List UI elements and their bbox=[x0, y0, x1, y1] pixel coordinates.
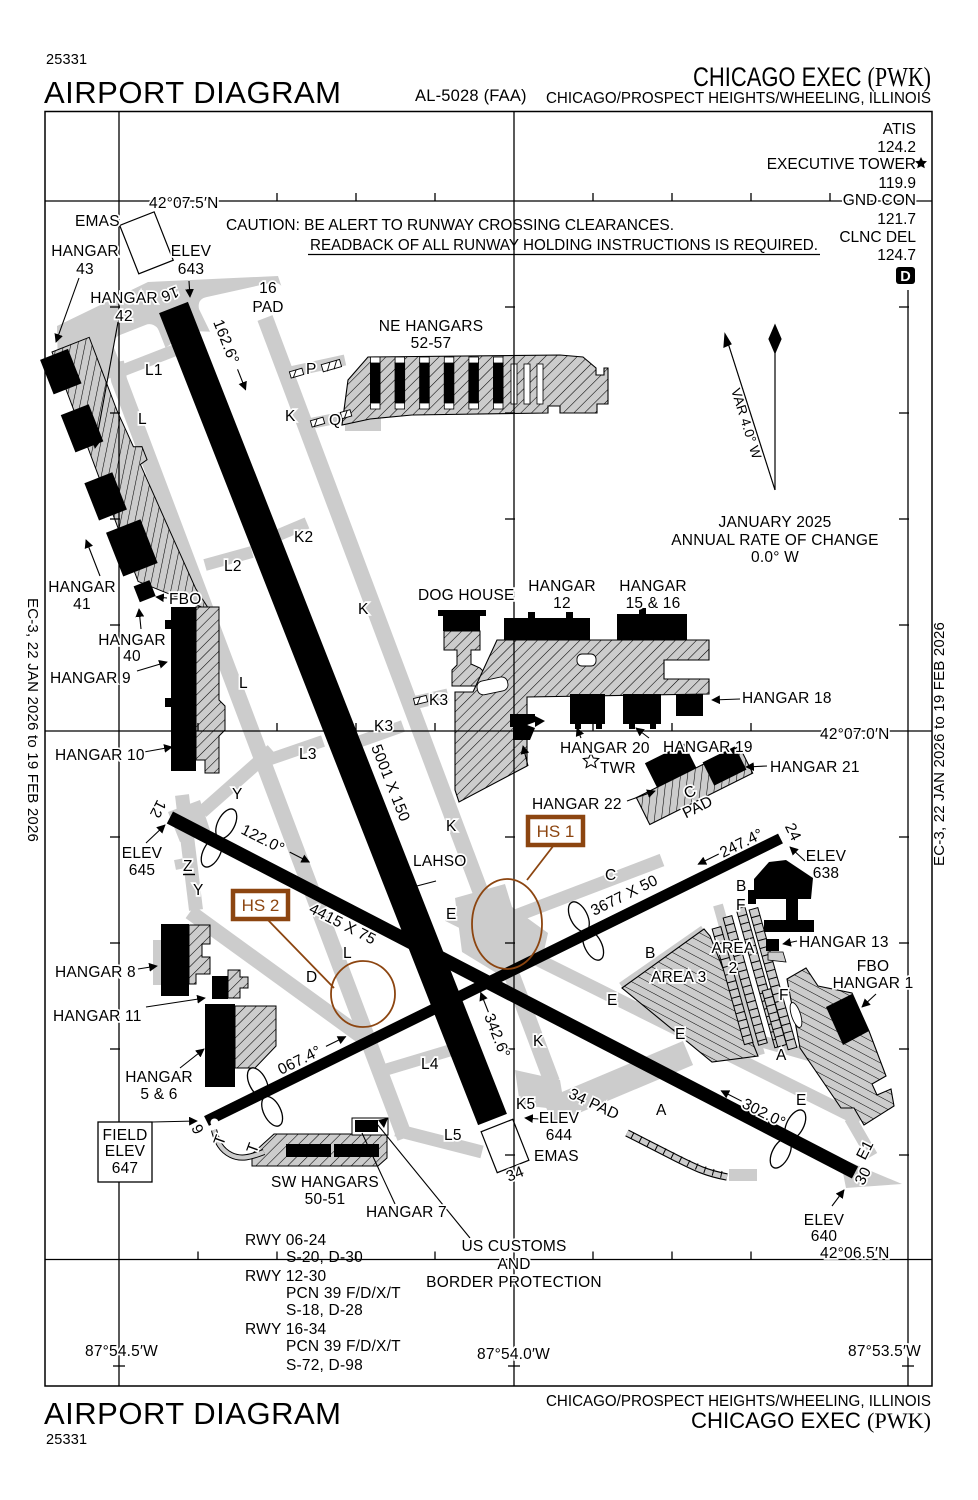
svg-text:EXECUTIVE TOWER: EXECUTIVE TOWER bbox=[767, 156, 916, 173]
svg-text:CHICAGO/PROSPECT HEIGHTS/WHEEL: CHICAGO/PROSPECT HEIGHTS/WHEELING, ILLIN… bbox=[546, 90, 931, 107]
svg-text:AREA: AREA bbox=[711, 940, 754, 957]
svg-text:HANGAR 9: HANGAR 9 bbox=[50, 670, 131, 687]
svg-text:LAHSO: LAHSO bbox=[413, 853, 467, 870]
svg-text:87°54.5′W: 87°54.5′W bbox=[85, 1343, 158, 1360]
svg-text:Q: Q bbox=[329, 412, 341, 429]
svg-text:42: 42 bbox=[115, 308, 133, 325]
svg-text:42°07.0′N: 42°07.0′N bbox=[820, 726, 890, 743]
svg-text:25331: 25331 bbox=[46, 52, 87, 68]
svg-text:5 & 6: 5 & 6 bbox=[140, 1086, 177, 1103]
svg-text:CHICAGO EXEC (PWK): CHICAGO EXEC (PWK) bbox=[691, 1408, 931, 1433]
svg-text:Y: Y bbox=[232, 786, 243, 803]
svg-text:HANGAR: HANGAR bbox=[98, 632, 166, 649]
svg-text:FBO: FBO bbox=[857, 958, 889, 975]
svg-text:US CUSTOMS: US CUSTOMS bbox=[461, 1238, 566, 1255]
svg-text:ELEV: ELEV bbox=[122, 845, 163, 862]
svg-text:644: 644 bbox=[546, 1127, 573, 1144]
svg-text:0.0° W: 0.0° W bbox=[751, 549, 799, 566]
svg-text:HANGAR: HANGAR bbox=[619, 578, 687, 595]
svg-text:HANGAR 18: HANGAR 18 bbox=[742, 690, 832, 707]
svg-text:L: L bbox=[239, 675, 248, 692]
svg-text:PCN 39 F/D/X/T: PCN 39 F/D/X/T bbox=[286, 1285, 401, 1302]
svg-text:EC-3, 22 JAN 2026 to 19 FEB: EC-3, 22 JAN 2026 to 19 FEB 2026 bbox=[931, 622, 948, 866]
svg-text:645: 645 bbox=[129, 862, 155, 879]
svg-text:E: E bbox=[796, 1092, 807, 1109]
svg-text:TWR: TWR bbox=[600, 760, 636, 777]
svg-text:119.9: 119.9 bbox=[878, 175, 916, 192]
svg-text:124.7: 124.7 bbox=[877, 247, 916, 264]
svg-text:HANGAR 1: HANGAR 1 bbox=[833, 975, 914, 992]
svg-text:P: P bbox=[306, 361, 317, 378]
svg-text:K: K bbox=[358, 601, 369, 618]
svg-text:F: F bbox=[779, 987, 789, 1004]
svg-text:HANGAR 20: HANGAR 20 bbox=[560, 740, 650, 757]
svg-text:87°53.5′W: 87°53.5′W bbox=[848, 1343, 921, 1360]
svg-text:52-57: 52-57 bbox=[411, 335, 452, 352]
svg-text:A: A bbox=[656, 1102, 667, 1119]
svg-text:HANGAR: HANGAR bbox=[528, 578, 596, 595]
svg-text:HANGAR 22: HANGAR 22 bbox=[532, 796, 622, 813]
svg-text:JANUARY 2025: JANUARY 2025 bbox=[719, 514, 832, 531]
svg-text:D: D bbox=[306, 969, 317, 986]
svg-text:AND: AND bbox=[497, 1256, 530, 1273]
svg-text:K: K bbox=[533, 1033, 544, 1050]
svg-text:HANGAR: HANGAR bbox=[48, 579, 116, 596]
svg-text:638: 638 bbox=[813, 865, 839, 882]
svg-text:PAD: PAD bbox=[252, 299, 283, 316]
svg-text:HS 1: HS 1 bbox=[537, 822, 575, 841]
svg-text:EC-3, 22 JAN 2026 to 19 FEB: EC-3, 22 JAN 2026 to 19 FEB 2026 bbox=[24, 598, 41, 842]
svg-text:F: F bbox=[736, 897, 746, 914]
svg-text:AIRPORT DIAGRAM: AIRPORT DIAGRAM bbox=[44, 1396, 341, 1431]
svg-text:S-18, D-28: S-18, D-28 bbox=[286, 1302, 363, 1319]
svg-text:READBACK OF ALL RUNWAY HOLDING: READBACK OF ALL RUNWAY HOLDING INSTRUCTI… bbox=[310, 237, 818, 254]
svg-text:L3: L3 bbox=[299, 746, 317, 763]
svg-text:HANGAR 21: HANGAR 21 bbox=[770, 759, 860, 776]
svg-text:FIELD: FIELD bbox=[103, 1127, 148, 1144]
svg-text:L5: L5 bbox=[444, 1127, 462, 1144]
svg-text:L1: L1 bbox=[145, 362, 163, 379]
svg-text:121.7: 121.7 bbox=[877, 211, 916, 228]
svg-text:ANNUAL RATE OF CHANGE: ANNUAL RATE OF CHANGE bbox=[671, 532, 878, 549]
svg-text:647: 647 bbox=[112, 1160, 138, 1177]
svg-text:HANGAR 7: HANGAR 7 bbox=[366, 1204, 447, 1221]
svg-text:CHICAGO EXEC (PWK): CHICAGO EXEC (PWK) bbox=[693, 62, 931, 92]
svg-text:GND CON: GND CON bbox=[843, 192, 916, 209]
svg-text:AREA 3: AREA 3 bbox=[651, 969, 706, 986]
svg-text:E: E bbox=[675, 1026, 686, 1043]
svg-text:L: L bbox=[138, 411, 147, 428]
svg-text:K3: K3 bbox=[374, 718, 393, 735]
svg-text:41: 41 bbox=[73, 596, 91, 613]
svg-text:ELEV: ELEV bbox=[804, 1212, 845, 1229]
svg-text:ELEV: ELEV bbox=[171, 243, 212, 260]
svg-text:E: E bbox=[607, 992, 618, 1009]
svg-text:AL-5028 (FAA): AL-5028 (FAA) bbox=[415, 87, 527, 105]
svg-text:NE HANGARS: NE HANGARS bbox=[379, 318, 484, 335]
svg-text:HANGAR 11: HANGAR 11 bbox=[53, 1008, 142, 1025]
svg-text:BORDER PROTECTION: BORDER PROTECTION bbox=[426, 1274, 602, 1291]
svg-text:L: L bbox=[343, 945, 352, 962]
svg-text:42°06.5′N: 42°06.5′N bbox=[820, 1245, 890, 1262]
svg-text:C: C bbox=[605, 867, 616, 884]
svg-text:HANGAR 13: HANGAR 13 bbox=[799, 934, 889, 951]
svg-text:AIRPORT DIAGRAM: AIRPORT DIAGRAM bbox=[44, 75, 341, 110]
svg-text:87°54.0′W: 87°54.0′W bbox=[477, 1346, 550, 1363]
svg-text:16: 16 bbox=[259, 280, 277, 297]
svg-text:HANGAR: HANGAR bbox=[90, 290, 158, 307]
svg-text:ELEV: ELEV bbox=[105, 1143, 146, 1160]
svg-text:25331: 25331 bbox=[46, 1432, 87, 1448]
svg-text:2: 2 bbox=[729, 960, 738, 977]
svg-text:D: D bbox=[900, 269, 910, 285]
svg-text:K2: K2 bbox=[294, 529, 313, 546]
svg-text:CLNC DEL: CLNC DEL bbox=[839, 229, 916, 246]
svg-text:HANGAR 10: HANGAR 10 bbox=[55, 747, 145, 764]
svg-text:SW HANGARS: SW HANGARS bbox=[271, 1174, 379, 1191]
svg-text:43: 43 bbox=[76, 261, 94, 278]
svg-text:PCN 39 F/D/X/T: PCN 39 F/D/X/T bbox=[286, 1338, 401, 1355]
svg-text:50-51: 50-51 bbox=[305, 1191, 346, 1208]
svg-text:Z: Z bbox=[183, 858, 193, 875]
svg-text:L4: L4 bbox=[421, 1056, 439, 1073]
svg-text:E: E bbox=[446, 906, 457, 923]
svg-text:HS 2: HS 2 bbox=[242, 896, 280, 915]
svg-text:S-72, D-98: S-72, D-98 bbox=[286, 1357, 363, 1374]
svg-text:DOG HOUSE: DOG HOUSE bbox=[418, 587, 515, 604]
svg-text:RWY 16-34: RWY 16-34 bbox=[245, 1321, 327, 1338]
svg-text:HANGAR 19: HANGAR 19 bbox=[663, 739, 753, 756]
svg-text:HANGAR: HANGAR bbox=[125, 1069, 193, 1086]
svg-text:HANGAR: HANGAR bbox=[51, 243, 119, 260]
svg-text:42°07.5′N: 42°07.5′N bbox=[149, 195, 219, 212]
svg-text:K5: K5 bbox=[516, 1096, 535, 1113]
svg-text:L2: L2 bbox=[224, 558, 242, 575]
svg-text:B: B bbox=[736, 878, 747, 895]
svg-text:Y: Y bbox=[193, 882, 204, 899]
svg-text:ELEV: ELEV bbox=[539, 1110, 580, 1127]
svg-text:124.2: 124.2 bbox=[877, 139, 916, 156]
svg-text:A: A bbox=[776, 1047, 787, 1064]
svg-text:K: K bbox=[285, 408, 296, 425]
svg-text:ATIS: ATIS bbox=[883, 121, 916, 138]
svg-text:FBO: FBO bbox=[169, 591, 201, 608]
svg-text:K3: K3 bbox=[429, 692, 448, 709]
svg-text:EMAS: EMAS bbox=[75, 213, 120, 230]
svg-text:S-20, D-30: S-20, D-30 bbox=[286, 1249, 363, 1266]
svg-text:EMAS: EMAS bbox=[534, 1148, 579, 1165]
svg-text:15 & 16: 15 & 16 bbox=[626, 595, 681, 612]
svg-text:RWY 06-24: RWY 06-24 bbox=[245, 1232, 327, 1249]
svg-text:CAUTION: BE ALERT TO RUNWAY CR: CAUTION: BE ALERT TO RUNWAY CROSSING CLE… bbox=[226, 217, 674, 234]
svg-text:ELEV: ELEV bbox=[806, 848, 847, 865]
svg-text:HANGAR 8: HANGAR 8 bbox=[55, 964, 136, 981]
svg-text:B: B bbox=[645, 945, 656, 962]
svg-text:K: K bbox=[446, 818, 457, 835]
svg-text:RWY 12-30: RWY 12-30 bbox=[245, 1268, 327, 1285]
svg-text:40: 40 bbox=[123, 648, 141, 665]
svg-text:12: 12 bbox=[553, 595, 571, 612]
svg-text:643: 643 bbox=[178, 261, 204, 278]
svg-text:640: 640 bbox=[811, 1228, 838, 1245]
